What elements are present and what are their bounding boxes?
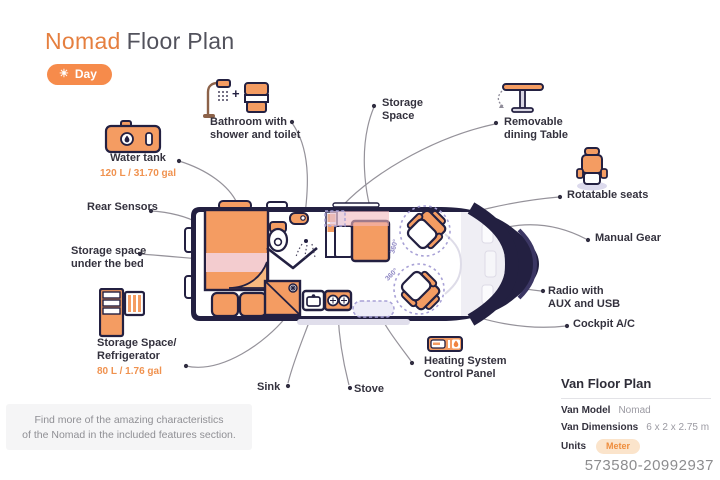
bench-cushion — [212, 293, 238, 316]
callout-storage-under-bed: Storage space under the bed — [71, 245, 146, 271]
note-line: Find more of the amazing characteristics — [6, 413, 252, 428]
row-label: Units — [561, 441, 586, 452]
floor-plan-page: 360° 360° NomadFloor Plan ☀ Day + — [0, 0, 720, 480]
callout-line: under the bed — [71, 258, 146, 271]
callout-line: Storage — [382, 97, 423, 110]
day-mode-label: Day — [75, 67, 97, 81]
callout-sink: Sink — [257, 381, 280, 394]
panel-heading: Van Floor Plan — [561, 376, 711, 391]
page-title-rest: Floor Plan — [127, 28, 235, 54]
callout-manual-gear: Manual Gear — [595, 232, 661, 245]
callout-line: Storage Space/ — [97, 337, 176, 350]
units-badge[interactable]: Meter — [596, 439, 640, 454]
callout-line: Control Panel — [424, 368, 507, 381]
callout-title: Water tank — [110, 152, 166, 164]
callout-line: Heating System — [424, 355, 507, 368]
panel-row-units: Units Meter — [561, 439, 711, 454]
callout-storage-space: Storage Space — [382, 97, 423, 123]
callout-rear-sensors: Rear Sensors — [87, 201, 158, 214]
callout-line: Radio with — [548, 285, 620, 298]
page-title-brand: Nomad — [45, 28, 121, 54]
callout-water-tank: Water tank 120 L / 31.70 gal — [86, 152, 190, 180]
row-value: 6 x 2 x 2.75 m — [646, 422, 709, 433]
page-title: NomadFloor Plan — [45, 28, 234, 55]
callout-title: Cockpit A/C — [573, 318, 635, 330]
toilet-icon — [243, 82, 271, 115]
plus-icon: + — [232, 86, 240, 101]
row-value: Nomad — [618, 405, 650, 416]
day-mode-toggle[interactable]: ☀ Day — [47, 64, 112, 85]
van-floorplan-diagram: 360° 360° — [183, 194, 553, 334]
callout-line: Removable — [504, 116, 568, 129]
refrigerator-icon — [99, 288, 145, 338]
heater-location — [353, 301, 394, 317]
dining-table-location — [325, 211, 345, 226]
bench-cushion — [240, 293, 266, 316]
callout-line: dining Table — [504, 129, 568, 142]
callout-value: 80 L / 1.76 gal — [97, 365, 176, 378]
shower-icon — [202, 78, 232, 118]
roof-rail — [333, 203, 379, 207]
sun-icon: ☀ — [59, 69, 69, 80]
callout-title: Sink — [257, 381, 280, 393]
callout-fridge: Storage Space/ Refrigerator 80 L / 1.76 … — [97, 337, 176, 378]
features-note: Find more of the amazing characteristics… — [6, 404, 252, 450]
dining-table-icon — [494, 82, 546, 115]
panel-row-dimensions: Van Dimensions 6 x 2 x 2.75 m — [561, 422, 711, 433]
wardrobe — [335, 226, 352, 257]
row-label: Van Dimensions — [561, 422, 638, 433]
callout-radio: Radio with AUX and USB — [548, 285, 620, 311]
row-label: Van Model — [561, 405, 610, 416]
watermark: 573580-20992937 — [585, 457, 714, 474]
callout-line: Space — [382, 110, 423, 123]
callout-bathroom: Bathroom with shower and toilet — [210, 116, 300, 142]
callout-line: AUX and USB — [548, 298, 620, 311]
callout-dining-table: Removable dining Table — [504, 116, 568, 142]
callout-stove: Stove — [354, 383, 384, 396]
callout-rotatable-seats: Rotatable seats — [567, 189, 648, 202]
callout-heating: Heating System Control Panel — [424, 355, 507, 381]
callout-title: Rear Sensors — [87, 201, 158, 213]
water-tank-icon — [104, 120, 162, 154]
callout-cockpit-ac: Cockpit A/C — [573, 318, 635, 331]
panel-divider — [561, 398, 711, 399]
van-info-panel: Van Floor Plan Van Model Nomad Van Dimen… — [561, 376, 711, 454]
heating-panel-icon — [427, 336, 463, 352]
callout-title: Rotatable seats — [567, 189, 648, 201]
panel-row-model: Van Model Nomad — [561, 405, 711, 416]
callout-line: Bathroom with — [210, 116, 300, 129]
toilet-bowl — [269, 229, 287, 251]
callout-title: Manual Gear — [595, 232, 661, 244]
callout-line: Refrigerator — [97, 350, 176, 363]
callout-line: Storage space — [71, 245, 146, 258]
note-line: of the Nomad in the included features se… — [6, 428, 252, 443]
callout-value: 120 L / 31.70 gal — [86, 167, 190, 180]
callout-title: Stove — [354, 383, 384, 395]
storage-block — [352, 221, 389, 261]
callout-line: shower and toilet — [210, 129, 300, 142]
sliding-door-sill — [297, 319, 410, 325]
rotatable-seat-icon — [574, 147, 610, 192]
